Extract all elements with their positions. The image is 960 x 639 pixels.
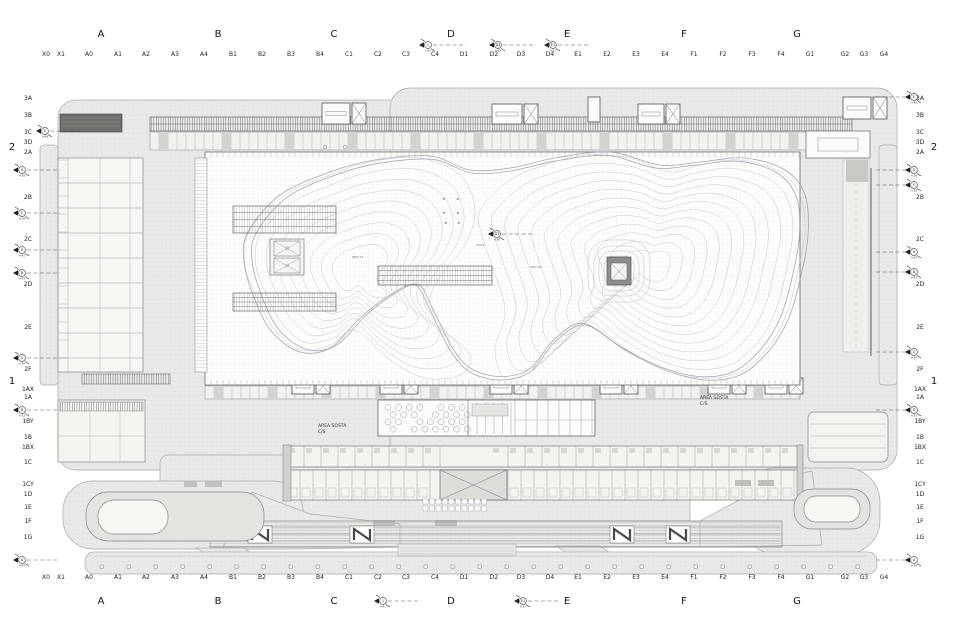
marker-flick xyxy=(907,246,911,249)
grid-label-top: A1 xyxy=(114,52,122,58)
marker-flick xyxy=(917,256,921,259)
east-pavilion xyxy=(806,131,870,158)
balcony-cell xyxy=(443,499,448,504)
balcony-cell xyxy=(443,506,448,511)
apron-post xyxy=(559,565,562,568)
grid-label-bottom: B3 xyxy=(287,575,295,581)
room-block xyxy=(754,387,763,398)
pavilion-box xyxy=(492,104,522,124)
marker-label: 1 xyxy=(382,599,384,603)
marker-label: F xyxy=(21,211,23,215)
balcony-cell xyxy=(469,506,474,511)
grid-major-bottom: G xyxy=(793,597,801,607)
row1-closet xyxy=(493,448,499,453)
marker-ref: A-37 xyxy=(520,605,526,609)
marker-flick xyxy=(917,276,921,279)
wing-row2 xyxy=(287,470,800,500)
section-marker: E1A-37 xyxy=(514,595,561,609)
apron-post xyxy=(127,565,130,568)
room-block xyxy=(348,133,357,149)
grid-label-right: 3D xyxy=(916,140,924,146)
room-block xyxy=(285,133,294,149)
marker-arrow xyxy=(905,407,910,413)
area-sosta-label-left: AREA SOSTA C/S xyxy=(318,424,346,435)
marker-arrow xyxy=(905,249,910,255)
marker-flick xyxy=(907,179,911,182)
grid-label-right: 2C xyxy=(916,237,924,243)
marker-label: E1 xyxy=(551,43,555,47)
grid-label-right: 3B xyxy=(916,113,924,119)
plan-dot xyxy=(458,222,460,224)
marker-label: 1 xyxy=(427,43,429,47)
area-sosta-line1: AREA SOSTA xyxy=(318,424,346,429)
apron-post xyxy=(829,565,832,568)
marker-arrow xyxy=(13,557,18,563)
marker-label: G xyxy=(21,168,24,172)
grid-label-top: E1 xyxy=(574,52,582,58)
marker-label: D3 xyxy=(495,232,500,236)
grid-label-left: 2D xyxy=(24,282,32,288)
grid-major-right: 2 xyxy=(931,143,937,153)
marker-flick xyxy=(25,414,29,417)
marker-flick xyxy=(556,49,560,52)
marker-label: D3 xyxy=(496,43,501,47)
marker-ref: A-39 xyxy=(19,217,25,221)
row1-closet xyxy=(391,448,397,453)
marker-flick xyxy=(25,362,29,365)
apron-post xyxy=(694,565,697,568)
grid-label-left: 1G xyxy=(24,535,32,541)
grid-label-top: D1 xyxy=(460,52,468,58)
marker-ref: A-42 xyxy=(911,256,917,260)
grid-label-top: B3 xyxy=(287,52,295,58)
balcony-cell xyxy=(469,499,474,504)
grid-label-right: 1C xyxy=(916,460,924,466)
marker-flick xyxy=(917,174,921,177)
grid-label-bottom: B4 xyxy=(316,575,324,581)
grid-label-left: 3C xyxy=(24,130,32,136)
apron-post xyxy=(343,565,346,568)
roof-strip xyxy=(758,480,774,486)
marker-ref: A-39 xyxy=(911,189,917,193)
row1-closet xyxy=(374,448,380,453)
grid-label-left: 1A xyxy=(24,395,32,401)
marker-ref: A-48 xyxy=(42,135,48,139)
marker-ref: A-34 xyxy=(19,362,25,366)
grid-label-top: A4 xyxy=(200,52,208,58)
balcony-cell xyxy=(430,506,435,511)
grid-label-left: 2A xyxy=(24,150,32,156)
grid-label-top: G2 xyxy=(841,52,849,58)
grid-major-bottom: C xyxy=(331,597,338,607)
marker-arrow xyxy=(905,167,910,173)
apron-post xyxy=(505,565,508,568)
grid-major-bottom: E xyxy=(564,597,570,607)
apron-post xyxy=(289,565,292,568)
marker-flick xyxy=(907,164,911,167)
marker-flick xyxy=(15,554,19,557)
grid-label-bottom: F4 xyxy=(777,575,784,581)
area-sosta-label-right: AREA SOSTA C/S xyxy=(700,396,728,407)
grid-label-bottom: G2 xyxy=(841,575,849,581)
room-block xyxy=(789,133,798,149)
marker-flick xyxy=(15,404,19,407)
grid-label-bottom: E2 xyxy=(603,575,611,581)
marker-ref: A-38 xyxy=(911,174,917,178)
grid-label-top: G1 xyxy=(806,52,814,58)
plan-dot xyxy=(443,198,445,200)
marker-ref: A-43 xyxy=(19,277,25,281)
apron-post xyxy=(316,565,319,568)
section-marker: DA-33 xyxy=(13,404,60,418)
marker-flick xyxy=(546,39,550,42)
kitchen-block xyxy=(472,404,508,416)
grid-label-bottom: G4 xyxy=(880,575,888,581)
row1-closet xyxy=(748,448,754,453)
marker-flick xyxy=(917,564,921,567)
grid-label-bottom: A0 xyxy=(85,575,93,581)
marker-ref: A-42 xyxy=(19,254,25,258)
apron-post xyxy=(613,565,616,568)
marker-ref: A-44 xyxy=(19,564,25,568)
hall-west-gallery xyxy=(195,158,207,372)
grid-label-top: G4 xyxy=(880,52,888,58)
row1-closet xyxy=(561,448,567,453)
row1-closet xyxy=(357,448,363,453)
apron-post xyxy=(154,565,157,568)
marker-flick xyxy=(526,605,530,608)
marker-arrow xyxy=(13,270,18,276)
balcony-cell xyxy=(430,499,435,504)
apron-post xyxy=(451,565,454,568)
grid-label-top: B4 xyxy=(316,52,324,58)
marker-arrow xyxy=(13,247,18,253)
marker-arrow xyxy=(13,210,18,216)
balcony-cell xyxy=(475,506,480,511)
apron-post xyxy=(586,565,589,568)
row1-closet xyxy=(595,448,601,453)
grid-label-left: 1B xyxy=(24,435,32,441)
roof-strip xyxy=(184,481,197,487)
grid-label-bottom: A1 xyxy=(114,575,122,581)
grid-label-top: B2 xyxy=(258,52,266,58)
marker-label: E xyxy=(913,95,915,99)
marker-ref: A-38 xyxy=(494,238,500,242)
grid-major-top: C xyxy=(331,30,338,40)
room-block xyxy=(268,387,277,398)
marker-flick xyxy=(25,217,29,220)
grid-label-left: 2E xyxy=(24,325,32,331)
grid-label-bottom: G3 xyxy=(860,575,868,581)
grid-label-bottom: E1 xyxy=(574,575,582,581)
row1-closet xyxy=(527,448,533,453)
marker-flick xyxy=(25,277,29,280)
grid-label-top: F1 xyxy=(690,52,697,58)
plan-drawing: W07.12W07.10124.4 EA-48GA-38FA-39HA-42BA… xyxy=(0,0,960,639)
grid-label-bottom: A3 xyxy=(171,575,179,581)
grid-label-top: E2 xyxy=(603,52,611,58)
marker-flick xyxy=(38,125,42,128)
apron-post xyxy=(397,565,400,568)
right-loop-hole xyxy=(804,496,860,522)
grid-major-bottom: F xyxy=(681,597,687,607)
grid-label-left: 3A xyxy=(24,96,32,102)
balcony-cell xyxy=(482,506,487,511)
apron-post xyxy=(748,565,751,568)
grid-label-bottom: C3 xyxy=(402,575,410,581)
grid-label-right: 1E xyxy=(916,505,924,511)
grid-major-top: E xyxy=(564,30,570,40)
marker-flick xyxy=(25,564,29,567)
grid-major-bottom: A xyxy=(98,597,105,607)
south-louver-strip xyxy=(82,374,170,384)
row1-closet xyxy=(340,448,346,453)
grid-label-right: 1A xyxy=(916,395,924,401)
apron-post xyxy=(478,565,481,568)
grid-label-left: 1BX xyxy=(22,445,34,451)
apron-post xyxy=(640,565,643,568)
apron-post xyxy=(100,565,103,568)
grid-label-right: 2B xyxy=(916,195,924,201)
spot-elevation-label: W07.10 xyxy=(530,265,542,269)
grid-label-bottom: C4 xyxy=(431,575,439,581)
marker-ref: A-44 xyxy=(911,564,917,568)
marker-flick xyxy=(15,267,19,270)
apron-post xyxy=(235,565,238,568)
marker-flick xyxy=(376,595,380,598)
marker-flick xyxy=(907,91,911,94)
apron-post xyxy=(532,565,535,568)
grid-major-left: 1 xyxy=(9,377,15,387)
row1-closet xyxy=(408,448,414,453)
apron-post xyxy=(802,565,805,568)
marker-label: H xyxy=(21,248,24,252)
grid-label-bottom: F2 xyxy=(719,575,726,581)
balcony-cell xyxy=(456,506,461,511)
row1-closet xyxy=(306,448,312,453)
marker-arrow xyxy=(905,557,910,563)
row1-closet xyxy=(663,448,669,453)
marker-flick xyxy=(421,39,425,42)
spot-elevation-label: W07.12 xyxy=(352,255,364,259)
grid-label-top: G3 xyxy=(860,52,868,58)
marker-label: H xyxy=(913,250,916,254)
grid-major-top: A xyxy=(98,30,105,40)
marker-arrow xyxy=(13,167,18,173)
marker-flick xyxy=(917,189,921,192)
room-band xyxy=(150,132,850,150)
room-block xyxy=(214,387,223,398)
balcony-cell xyxy=(456,499,461,504)
grid-label-bottom: F3 xyxy=(748,575,755,581)
marker-ref: A-33 xyxy=(911,414,917,418)
grid-label-right: 1D xyxy=(916,492,924,498)
room-block xyxy=(411,133,420,149)
row1-closet xyxy=(629,448,635,453)
west-court-hatch xyxy=(60,402,143,411)
marker-ref: A-34 xyxy=(911,356,917,360)
apron-post xyxy=(262,565,265,568)
grid-label-bottom: C2 xyxy=(374,575,382,581)
row1-closet xyxy=(612,448,618,453)
apron-post xyxy=(208,565,211,568)
grid-major-top: D xyxy=(447,30,455,40)
balcony-cell xyxy=(462,506,467,511)
grid-major-bottom: D xyxy=(447,597,455,607)
west-slab xyxy=(58,158,143,372)
grid-label-right: 2A xyxy=(916,150,924,156)
marker-flick xyxy=(907,266,911,269)
plan-dot xyxy=(443,212,445,214)
balcony-cell xyxy=(475,499,480,504)
marker-label: D xyxy=(913,408,916,412)
marker-arrow xyxy=(419,42,424,48)
wing-row1 xyxy=(287,446,800,467)
east-court xyxy=(808,412,888,462)
grid-label-top: F4 xyxy=(777,52,784,58)
room-block xyxy=(159,133,168,149)
grid-label-right: 1B xyxy=(916,435,924,441)
apron-post xyxy=(667,565,670,568)
grid-label-top: B1 xyxy=(229,52,237,58)
marker-flick xyxy=(516,595,520,598)
grid-label-bottom: E3 xyxy=(632,575,640,581)
marker-arrow xyxy=(905,349,910,355)
marker-ref: A-41 xyxy=(380,605,386,609)
marker-flick xyxy=(15,244,19,247)
room-block xyxy=(430,387,439,398)
grid-label-bottom: X0 xyxy=(42,575,50,581)
grid-label-bottom: X1 xyxy=(57,575,65,581)
grid-label-left: 1CY xyxy=(22,482,34,488)
grid-label-left: 3D xyxy=(24,140,32,146)
room-block xyxy=(538,387,547,398)
marker-arrow xyxy=(514,598,519,604)
marker-flick xyxy=(907,404,911,407)
grid-label-top: C2 xyxy=(374,52,382,58)
balcony-cell xyxy=(482,499,487,504)
grid-label-right: 2E xyxy=(916,325,924,331)
marker-arrow xyxy=(36,128,41,134)
marker-label: G xyxy=(913,168,916,172)
marker-arrow xyxy=(13,407,18,413)
grid-label-top: C3 xyxy=(402,52,410,58)
marker-arrow xyxy=(489,42,494,48)
grid-label-left: 1C xyxy=(24,460,32,466)
grid-label-right: 1BX xyxy=(914,445,926,451)
section-marker: AA-44 xyxy=(876,554,921,568)
grid-label-top: E4 xyxy=(661,52,669,58)
marker-flick xyxy=(907,554,911,557)
roof-strip xyxy=(205,481,222,487)
marker-flick xyxy=(15,207,19,210)
grid-label-left: 1E xyxy=(24,505,32,511)
row1-closet xyxy=(680,448,686,453)
grid-label-left: 2B xyxy=(24,195,32,201)
dark-plant-block xyxy=(60,114,122,132)
grid-label-left: 3B xyxy=(24,113,32,119)
spot-elevation-label: 124.4 xyxy=(476,243,485,247)
grid-label-bottom: B2 xyxy=(258,575,266,581)
balcony-cell xyxy=(436,499,441,504)
area-sosta-line2: C/S xyxy=(318,430,326,435)
marker-label: D xyxy=(21,408,24,412)
grid-label-bottom: D4 xyxy=(546,575,554,581)
east-gray-block xyxy=(846,160,868,182)
grid-label-bottom: D3 xyxy=(517,575,525,581)
marker-ref: A-33 xyxy=(19,414,25,418)
grid-label-left: 1AX xyxy=(22,387,34,393)
grid-label-left: 2C xyxy=(24,237,32,243)
marker-flick xyxy=(917,414,921,417)
grid-label-bottom: D2 xyxy=(490,575,498,581)
grid-label-left: 1BY xyxy=(22,419,33,425)
row1-closet xyxy=(731,448,737,453)
roof-strip xyxy=(735,480,751,486)
grid-label-left: 1D xyxy=(24,492,32,498)
grid-label-top: D3 xyxy=(517,52,525,58)
row1-closet xyxy=(323,448,329,453)
marker-arrow xyxy=(374,598,379,604)
apron-post xyxy=(424,565,427,568)
marker-flick xyxy=(491,39,495,42)
small-pavilion xyxy=(588,97,600,122)
area-sosta-line1: AREA SOSTA xyxy=(700,396,728,401)
grid-major-top: F xyxy=(681,30,687,40)
marker-ref: A-43 xyxy=(911,276,917,280)
apron-post xyxy=(721,565,724,568)
grid-label-bottom: A4 xyxy=(200,575,208,581)
apron-post xyxy=(181,565,184,568)
row1-closet xyxy=(425,448,431,453)
grid-major-left: 2 xyxy=(9,143,15,153)
grid-label-top: E3 xyxy=(632,52,640,58)
section-marker: AA-44 xyxy=(13,554,60,568)
marker-ref: A-38 xyxy=(19,174,25,178)
plan-dot xyxy=(457,212,459,214)
wing-west-cap xyxy=(283,445,291,501)
marker-label: F xyxy=(913,183,915,187)
grid-major-right: 1 xyxy=(931,377,937,387)
grid-major-top: G xyxy=(793,30,801,40)
row1-closet xyxy=(782,448,788,453)
marker-label: E xyxy=(44,129,46,133)
marker-arrow xyxy=(905,269,910,275)
section-marker: 1A-41 xyxy=(374,595,421,609)
marker-label: E1 xyxy=(521,599,525,603)
grid-label-top: F3 xyxy=(748,52,755,58)
grid-label-right: 1F xyxy=(916,519,923,525)
row1-closet xyxy=(578,448,584,453)
stair-core xyxy=(270,239,304,275)
room-block xyxy=(474,133,483,149)
grid-label-right: 2F xyxy=(916,367,923,373)
marker-flick xyxy=(15,164,19,167)
grid-label-top: F2 xyxy=(719,52,726,58)
balcony-cell xyxy=(436,506,441,511)
grid-label-bottom: A2 xyxy=(142,575,150,581)
marker-flick xyxy=(917,356,921,359)
apron-post xyxy=(856,565,859,568)
balcony-cell xyxy=(462,499,467,504)
row1-closet xyxy=(646,448,652,453)
grid-label-bottom: E4 xyxy=(661,575,669,581)
marker-flick xyxy=(25,254,29,257)
room-block xyxy=(726,133,735,149)
balcony-cell xyxy=(423,499,428,504)
grid-label-bottom: D1 xyxy=(460,575,468,581)
grid-major-top: B xyxy=(215,30,222,40)
